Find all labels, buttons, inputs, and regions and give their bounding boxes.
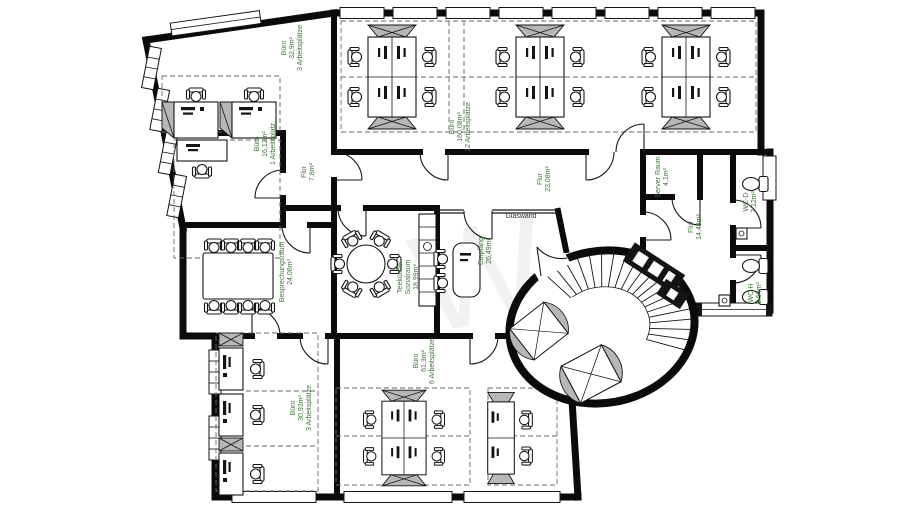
label-flur-14: Flur 14,48m² [688,213,703,239]
svg-text:61,3m²: 61,3m² [421,349,428,371]
svg-text:Sozialraum: Sozialraum [405,259,412,294]
svg-text:3 Arbeitsplätze: 3 Arbeitsplätze [306,385,313,431]
svg-text:7,12m²: 7,12m² [751,190,758,212]
svg-text:4,1m²: 4,1m² [663,167,670,186]
desk-cluster [364,390,445,486]
svg-text:7,8m²: 7,8m² [309,162,316,181]
label-buero-32: Büro 32,9m² 3 Arbeitsplätze [281,25,304,71]
svg-text:Flur: Flur [688,220,695,233]
svg-text:Besprechungsraum: Besprechungsraum [279,241,286,302]
label-empfang: Empfang 26,49m² [478,237,493,265]
svg-text:Glaswand: Glaswand [505,213,536,220]
label-wc-h: WC-H 5,54m² [748,281,763,303]
svg-text:WC-D: WC-D [743,192,750,211]
label-flur-7: Flur 7,8m² [301,162,316,181]
label-glaswand: Glaswand [505,213,536,220]
svg-text:18,99m²: 18,99m² [413,263,420,289]
svg-text:Teeküche/: Teeküche/ [397,261,404,293]
label-besprechungsraum: Besprechungsraum 24,08m² [279,241,294,302]
label-server-raum: Server Raum 4,1m² [655,156,670,197]
label-teekueche: Teeküche/ Sozialraum 18,99m² [397,259,420,294]
svg-text:30,93m²: 30,93m² [298,394,305,420]
svg-text:26,49m²: 26,49m² [486,237,493,263]
label-wc-d: WC-D 7,12m² [743,190,758,212]
conference-table [203,239,275,314]
svg-text:Flur: Flur [537,172,544,185]
label-flur-23: Flur 23,08m² [537,165,552,191]
svg-text:14,48m²: 14,48m² [696,213,703,239]
svg-text:Büro: Büro [413,354,420,369]
office-desk-single [177,140,227,178]
svg-text:16,12m²: 16,12m² [262,130,269,156]
svg-text:1 Arbeitsplatz: 1 Arbeitsplatz [270,122,277,165]
svg-text:3 Arbeitsplätze: 3 Arbeitsplätze [297,25,304,71]
desk-cluster [488,392,533,483]
svg-text:12 Arbeitsplätze: 12 Arbeitsplätze [465,102,472,152]
svg-text:5,54m²: 5,54m² [756,281,763,303]
round-table [331,229,401,299]
svg-text:WC-H: WC-H [748,283,755,302]
label-buero-160: Büro 160,08m² 12 Arbeitsplätze [449,102,472,152]
svg-text:Flur: Flur [301,165,308,178]
svg-text:6 Arbeitsplätze: 6 Arbeitsplätze [429,338,436,384]
floor-plan-drawing: W [0,0,900,506]
svg-text:Server Raum: Server Raum [655,156,662,197]
svg-text:32,9m²: 32,9m² [289,36,296,58]
svg-text:24,08m²: 24,08m² [287,258,294,284]
office-desks-bottomleft [219,333,264,495]
svg-text:160,08m²: 160,08m² [457,112,464,142]
label-buero-61: Büro 61,3m² 6 Arbeitsplätze [413,338,436,384]
svg-text:23,08m²: 23,08m² [545,165,552,191]
label-buero-30: Büro 30,93m² 3 Arbeitsplätze [290,385,313,431]
svg-text:Büro: Büro [449,120,456,135]
svg-text:Büro: Büro [281,41,288,56]
svg-text:Büro: Büro [290,401,297,416]
svg-text:Empfang: Empfang [478,237,485,265]
floor-plan-page: W [0,0,900,506]
svg-text:Büro: Büro [254,137,261,152]
